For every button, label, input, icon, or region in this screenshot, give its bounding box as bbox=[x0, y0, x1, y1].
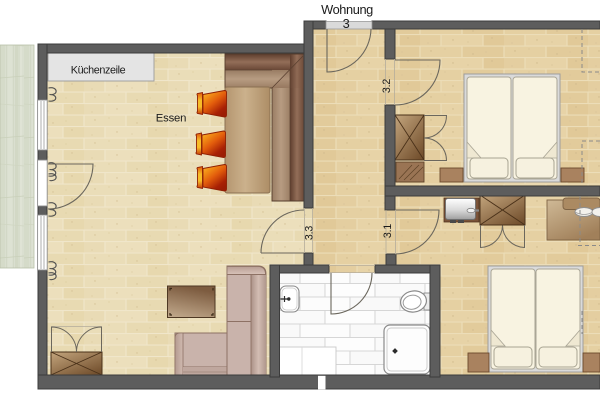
svg-text:3.2: 3.2 bbox=[381, 79, 393, 93]
svg-text:Essen: Essen bbox=[156, 113, 186, 125]
svg-text:Küchenzeile: Küchenzeile bbox=[71, 65, 126, 77]
svg-text:Wohnung: Wohnung bbox=[321, 2, 373, 17]
svg-text:3: 3 bbox=[343, 16, 350, 31]
svg-text:3.1: 3.1 bbox=[382, 224, 394, 238]
svg-text:3.3: 3.3 bbox=[304, 226, 316, 240]
